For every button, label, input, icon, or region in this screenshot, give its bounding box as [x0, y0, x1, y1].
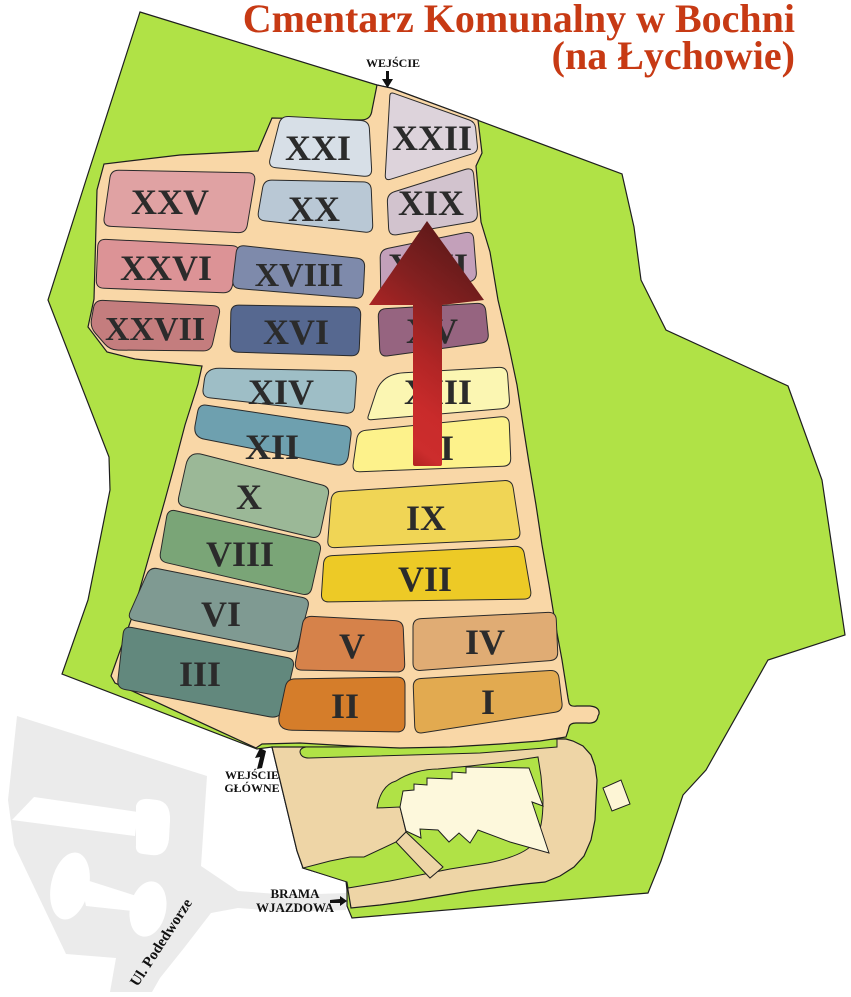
svg-text:III: III	[179, 654, 221, 694]
svg-text:XII: XII	[245, 427, 299, 467]
svg-text:WEJŚCIE: WEJŚCIE	[366, 56, 420, 70]
svg-text:II: II	[331, 686, 359, 726]
svg-text:XX: XX	[288, 189, 340, 229]
svg-text:GŁÓWNE: GŁÓWNE	[224, 781, 279, 795]
svg-text:XIX: XIX	[398, 183, 464, 223]
svg-text:XIV: XIV	[248, 372, 314, 412]
svg-text:I: I	[481, 682, 495, 722]
svg-text:WJAZDOWA: WJAZDOWA	[256, 900, 335, 915]
svg-text:IV: IV	[465, 622, 505, 662]
svg-text:XXVI: XXVI	[120, 248, 212, 288]
svg-text:VII: VII	[398, 559, 452, 599]
svg-text:V: V	[339, 626, 365, 666]
svg-text:XVIII: XVIII	[255, 257, 344, 294]
svg-text:XXII: XXII	[392, 118, 472, 158]
svg-text:VI: VI	[201, 594, 241, 634]
svg-text:BRAMA: BRAMA	[270, 886, 320, 901]
svg-text:X: X	[236, 477, 262, 517]
svg-text:XVI: XVI	[263, 312, 329, 352]
svg-text:XXI: XXI	[285, 128, 351, 168]
svg-text:WEJŚCIE: WEJŚCIE	[225, 768, 279, 782]
svg-text:XXVII: XXVII	[105, 311, 205, 348]
svg-text:VIII: VIII	[206, 534, 274, 574]
svg-text:IX: IX	[406, 498, 446, 538]
svg-text:(na Łychowie): (na Łychowie)	[552, 33, 795, 78]
svg-text:XXV: XXV	[131, 182, 209, 222]
